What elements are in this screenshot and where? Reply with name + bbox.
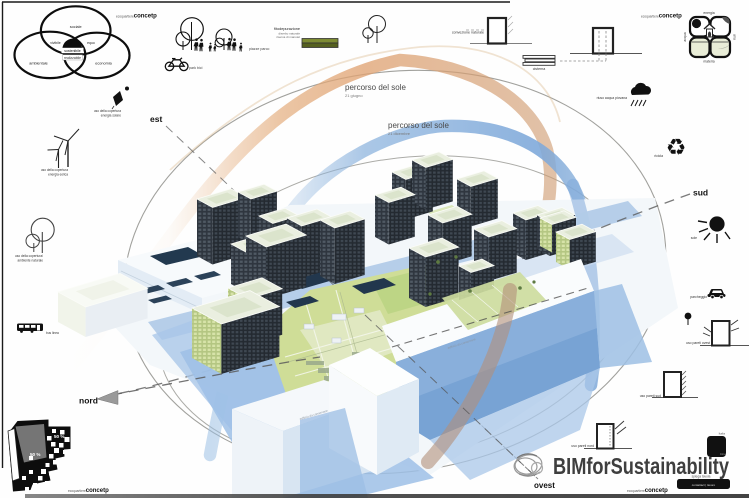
svg-text:21 giugno: 21 giugno [345,93,363,98]
svg-text:materia: materia [703,60,714,64]
svg-text:percorso del sole: percorso del sole [388,121,449,130]
svg-text:est: est [150,114,162,124]
svg-text:parcheggio: parcheggio [690,295,707,299]
svg-text:ricicla: ricicla [654,154,663,158]
svg-text:21 dicembre: 21 dicembre [388,131,411,136]
svg-text:Italia: Italia [719,432,726,436]
svg-text:riuso acqua piovana: riuso acqua piovana [597,96,627,100]
svg-text:uso pareti nord: uso pareti nord [571,444,594,448]
svg-text:contattaci | lavoro: contattaci | lavoro [692,483,716,487]
svg-text:spiega tavola: spiega tavola [692,475,711,479]
svg-text:piazze parco: piazze parco [249,47,269,51]
svg-text:ovest: ovest [534,481,555,490]
svg-text:energia eolica: energia eolica [48,173,68,177]
svg-text:cisterna: cisterna [533,67,546,71]
svg-text:economia: economia [95,62,112,66]
svg-text:park bici: park bici [189,66,203,70]
svg-text:convezione naturale: convezione naturale [452,31,484,35]
svg-text:aria: aria [733,34,737,40]
svg-text:sole: sole [691,236,697,240]
svg-text:sud: sud [693,188,708,198]
svg-text:nord: nord [79,396,98,406]
svg-text:uso pareti sud: uso pareti sud [640,394,661,398]
svg-text:vivibile: vivibile [50,41,61,45]
svg-text:percorso del sole: percorso del sole [345,83,406,92]
svg-text:ambientale: ambientale [29,62,48,66]
svg-text:uso della copertura: uso della copertura [94,109,121,113]
svg-text:uso della copertura/: uso della copertura/ [15,254,43,258]
svg-text:equo: equo [87,41,95,45]
svg-text:50 %: 50 % [54,434,64,439]
svg-text:sostenibile: sostenibile [64,49,81,53]
svg-text:acqua: acqua [683,32,687,41]
svg-text:50 %: 50 % [30,452,40,457]
svg-text:riserva di manutel: riserva di manutel [276,35,300,39]
svg-text:bus linea: bus linea [46,331,59,335]
svg-text:sociale: sociale [70,25,82,29]
svg-text:♻: ♻ [666,134,687,160]
svg-text:fitodepurazione: fitodepurazione [274,27,300,31]
svg-text:realizzabile: realizzabile [64,56,81,60]
svg-text:uso pareti ovest: uso pareti ovest [686,341,710,345]
svg-text:uso della copertura: uso della copertura [41,168,68,172]
svg-text:energia: energia [703,11,714,15]
svg-text:Cina: Cina [720,452,727,456]
svg-text:energia solare: energia solare [101,114,121,118]
svg-text:ambiente naturale: ambiente naturale [17,259,43,263]
